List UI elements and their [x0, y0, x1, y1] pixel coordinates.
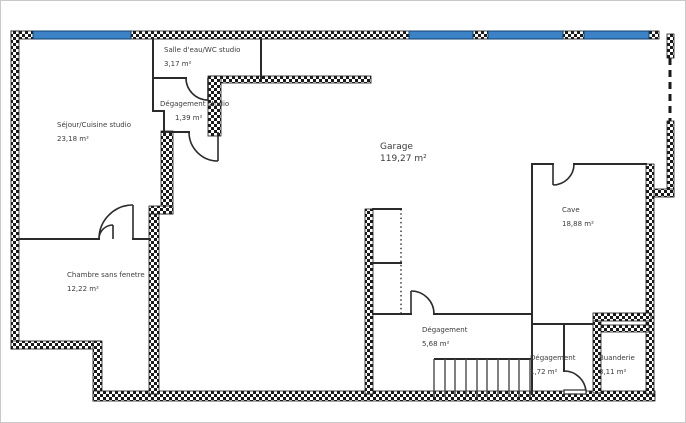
room-label-degagement-sous-sol: Dégagement 5,68 m²	[422, 323, 468, 351]
room-area: 5,68 m²	[422, 337, 468, 351]
window-marker	[409, 31, 473, 39]
room-area: 23,18 m²	[57, 132, 131, 146]
room-area: 12,22 m²	[67, 282, 145, 296]
room-name: Séjour/Cuisine studio	[57, 118, 131, 132]
door-cave	[553, 164, 574, 185]
room-area: 3,17 m²	[164, 57, 240, 71]
room-name: Garage	[380, 141, 427, 153]
room-area: 18,88 m²	[562, 217, 594, 231]
openings	[401, 58, 670, 314]
room-name: Cave	[562, 203, 594, 217]
room-label-garage: Garage 119,27 m²	[380, 141, 427, 165]
room-name: Salle d'eau/WC studio	[164, 43, 240, 57]
door-degagement-sous-sol	[411, 291, 434, 314]
window-marker	[584, 31, 649, 39]
room-label-buanderie: Buanderie 3,11 m²	[599, 351, 635, 379]
room-label-chambre-sans-fenetre: Chambre sans fenetre 12,22 m²	[67, 268, 145, 296]
room-area: 119,27 m²	[380, 153, 427, 165]
doors	[99, 78, 586, 394]
floor-plan: Salle d'eau/WC studio 3,17 m² Dégagement…	[0, 0, 686, 423]
room-name: Buanderie	[599, 351, 635, 365]
room-label-sejour-cuisine-studio: Séjour/Cuisine studio 23,18 m²	[57, 118, 131, 146]
room-name: Dégagement	[422, 323, 468, 337]
room-label-cave: Cave 18,88 m²	[562, 203, 594, 231]
room-name: Dégagement	[530, 351, 576, 365]
window-marker	[488, 31, 563, 39]
room-area: 1,39 m²	[160, 111, 229, 125]
room-name: Dégagement studio	[160, 97, 229, 111]
room-name: Chambre sans fenetre	[67, 268, 145, 282]
room-area: 1,72 m²	[530, 365, 576, 379]
room-label-degagement-studio: Dégagement studio 1,39 m²	[160, 97, 229, 125]
door-chambre	[99, 205, 133, 239]
room-label-salle-eau-studio: Salle d'eau/WC studio 3,17 m²	[164, 43, 240, 71]
partition-walls	[19, 39, 646, 394]
room-label-degagement-2: Dégagement 1,72 m²	[530, 351, 576, 379]
window-marker	[33, 31, 131, 39]
room-area: 3,11 m²	[599, 365, 635, 379]
